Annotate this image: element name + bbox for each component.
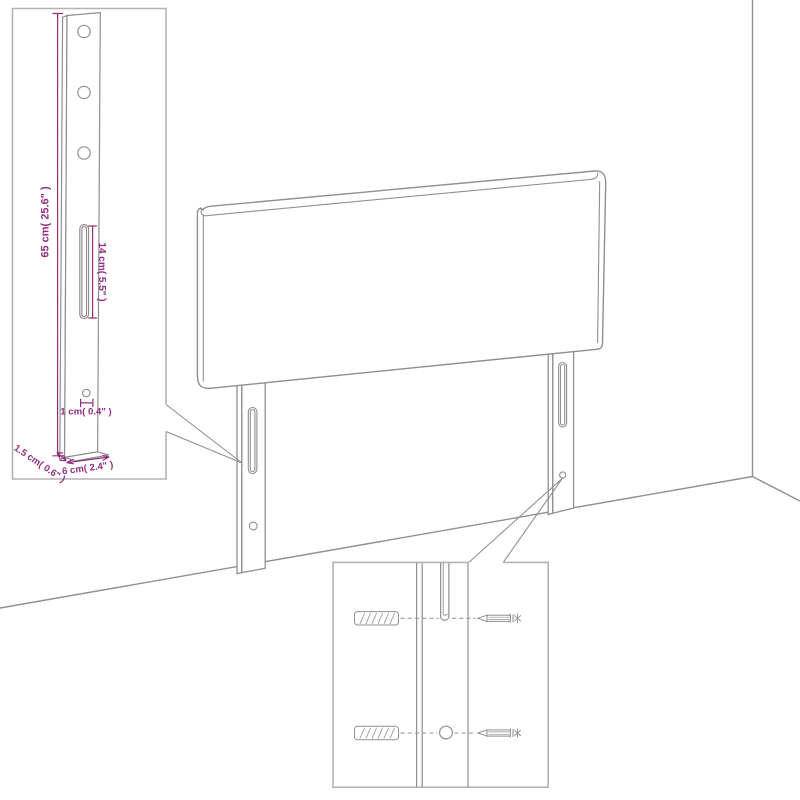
wall-anchor-icon	[355, 612, 399, 625]
label-slot-length: 14 cm( 5.5" )	[96, 242, 107, 301]
panel-outline	[197, 171, 605, 388]
label-hole-size: 1 cm( 0.4" )	[60, 407, 111, 418]
right-inset-callout-left	[469, 478, 563, 562]
headboard-panel	[197, 171, 605, 388]
headboard-dimension-diagram: 65 cm( 25.6" ) 14 cm( 5.5" ) 1 cm( 0.4" …	[0, 0, 800, 800]
label-post-height: 65 cm( 25.6" )	[40, 186, 52, 258]
wall-anchor-icon	[355, 726, 399, 739]
right-leg-hole	[560, 472, 566, 478]
callout-lines	[166, 405, 562, 563]
inset-post-hole-2	[78, 86, 90, 98]
left-leg-hole	[249, 522, 257, 530]
floor-line-right	[753, 477, 800, 502]
left-leg-front-face	[242, 376, 265, 573]
inset-post-slot	[80, 225, 89, 319]
diagram-canvas: 65 cm( 25.6" ) 14 cm( 5.5" ) 1 cm( 0.4" …	[0, 0, 800, 800]
right-leg-slot	[559, 363, 567, 428]
left-leg-side-face	[237, 381, 242, 574]
left-leg-slot	[248, 408, 257, 474]
left-inset-callout-lower	[166, 432, 242, 464]
left-inset-callout-upper	[166, 405, 242, 464]
inset-post-hole-1	[78, 25, 90, 37]
inset-post-small-hole	[83, 389, 90, 396]
right-inset-callout-right	[503, 478, 562, 562]
leg-details	[248, 363, 566, 530]
detail-inset-mounting	[333, 562, 548, 787]
inset-post-hole-3	[78, 147, 90, 159]
detail-inset-post: 65 cm( 25.6" ) 14 cm( 5.5" ) 1 cm( 0.4" …	[12, 9, 166, 486]
